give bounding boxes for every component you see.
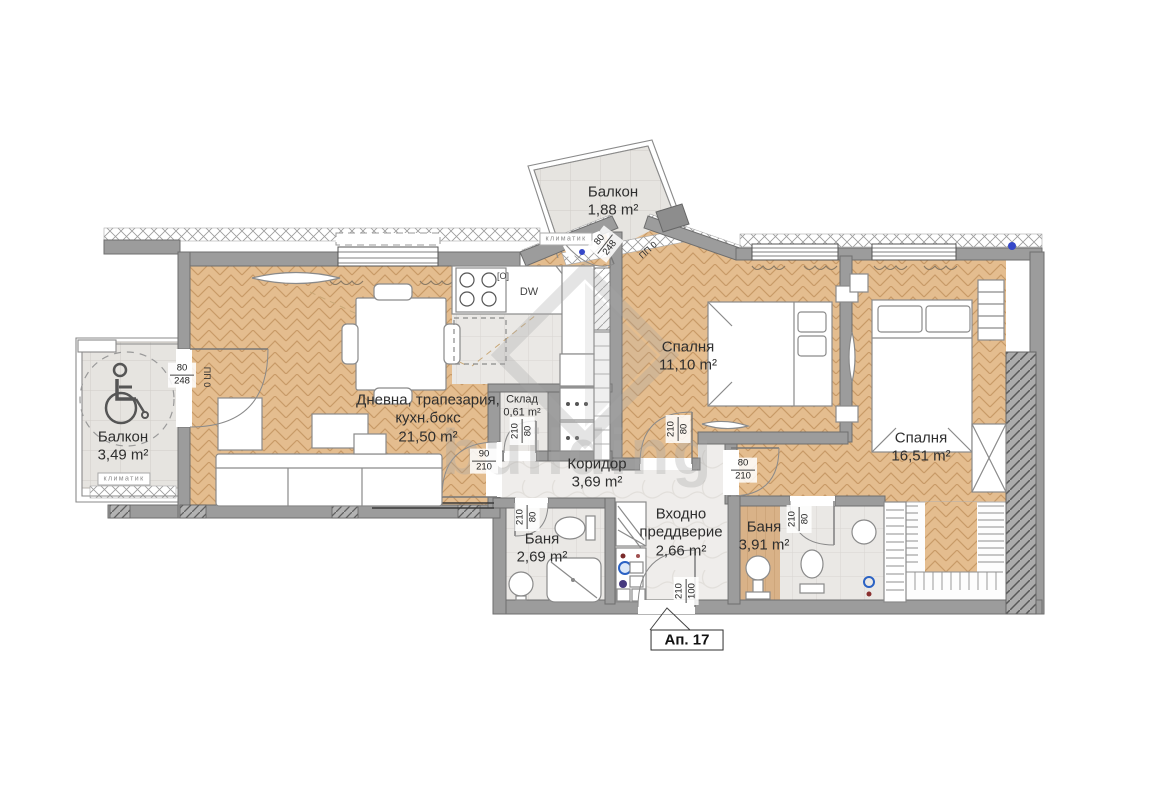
room-label-corridor: Коридор 3,69 m² — [567, 456, 626, 493]
room-label-entry: Входно преддверие 2,66 m² — [639, 506, 722, 561]
room-label-bedroom2: Спалня 16,51 m² — [891, 430, 950, 467]
sink-icon — [509, 572, 533, 596]
wardrobe — [972, 424, 1006, 492]
tv-icon — [849, 332, 855, 382]
room-label-storage: Склад 0,61 m² — [503, 393, 540, 418]
door-dim-storage: 210 80 — [510, 417, 535, 445]
room-label-bedroom1: Спалня 11,10 m² — [659, 339, 717, 376]
door-dim-bath2: 210 80 — [787, 505, 812, 533]
door-dim-bedroom2: 80 210 — [729, 458, 757, 483]
door-dim-bedroom1: 210 80 — [666, 415, 691, 443]
floor-plan-drawing — [0, 0, 1170, 785]
door-dim-living: 90 210 — [470, 449, 498, 474]
toilet-icon — [801, 550, 823, 578]
room-label-bath2: Баня 3,91 m² — [739, 519, 790, 556]
door-dim-entry: 210 100 — [674, 577, 699, 605]
floor-plan: building Балкон 1,88 m² климатик ПП 0 80… — [0, 0, 1170, 785]
dishwasher-label: DW — [520, 286, 538, 298]
oven-symbol: [O] — [497, 271, 509, 281]
room-label-balcony-top: Балкон 1,88 m² — [588, 184, 639, 221]
sink-icon — [852, 520, 876, 544]
room-label-living: Дневна, трапезария, кухн.бокс 21,50 m² — [356, 392, 500, 447]
cabinet — [218, 398, 262, 450]
dining-table — [342, 284, 460, 404]
neighbor-wall — [1006, 352, 1036, 614]
ac-unit-label: климатик — [539, 233, 592, 246]
room-label-balcony-left: Балкон 3,49 m² — [98, 429, 149, 466]
room-label-bath1: Баня 2,69 m² — [517, 531, 568, 568]
door-mark-pp0-left: ПП 0 — [202, 367, 212, 387]
ac-unit-label: климатик — [97, 473, 150, 486]
door-dim-bath1: 210 80 — [515, 503, 540, 531]
door-dim-balcony-left: 80 248 — [168, 363, 196, 388]
sofa — [216, 454, 442, 506]
pedestal-sink-icon — [746, 556, 770, 580]
apartment-number-badge: Ап. 17 — [651, 630, 724, 651]
